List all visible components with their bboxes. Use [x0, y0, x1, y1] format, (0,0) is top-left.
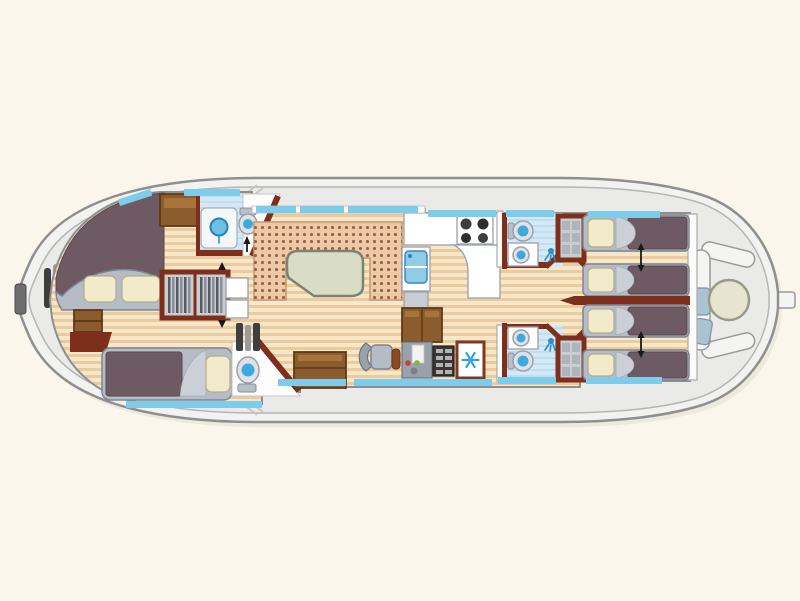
aft-cabin-divider-wall — [560, 296, 690, 305]
console-knob — [411, 368, 418, 375]
shelf-unit — [433, 346, 454, 376]
toilet-water — [243, 219, 253, 229]
companionway-steps — [236, 323, 260, 351]
galley-sink — [402, 247, 430, 291]
indicator-light-red — [405, 360, 411, 366]
window-saloon-top-a — [256, 206, 296, 213]
wardrobe-body — [558, 216, 584, 260]
aft-single-bed-1 — [583, 215, 689, 251]
toilet-water — [518, 226, 529, 237]
single-bed-pillow — [206, 356, 230, 392]
window-saloon-top-c — [348, 206, 418, 213]
refrigerator — [457, 342, 484, 378]
boat-floor-plan-canvas — [0, 0, 800, 601]
stern-round-table — [709, 280, 749, 320]
helm-seat — [359, 343, 392, 371]
window-bow-top — [184, 189, 240, 196]
shower-wall-left — [196, 194, 200, 256]
aft-bathroom-port — [502, 213, 563, 269]
toilet-water — [242, 364, 255, 377]
washbasin-water — [517, 334, 526, 343]
hanging-wardrobe — [162, 262, 228, 328]
bow-cabinet — [160, 194, 200, 226]
window-bow-bottom — [126, 401, 262, 408]
window-bathroom-top — [506, 210, 554, 217]
window-galley-top — [428, 210, 496, 217]
shower-fixture-icon — [211, 219, 228, 236]
single-bed-port — [102, 348, 232, 400]
saloon-side-cabinet-1 — [226, 278, 248, 298]
aft-single-bed-3 — [583, 305, 689, 337]
toilet-water — [518, 356, 529, 367]
double-bed-pillow-1 — [84, 276, 116, 302]
boat-floor-plan — [0, 0, 800, 601]
window-saloon-top-b — [300, 206, 344, 213]
aft-single-bed-4 — [583, 350, 689, 380]
bathroom-wall-left — [502, 213, 507, 269]
bow-tip-cleat — [15, 284, 26, 314]
aft-single-bed-2 — [583, 264, 689, 296]
window-aft-top — [588, 211, 660, 218]
saloon-side-cabinet-2 — [226, 300, 248, 318]
shower-wall-bottom — [196, 250, 246, 256]
indicator-light-green — [414, 360, 420, 366]
window-helm-bottom — [354, 379, 492, 386]
aft-bathroom-starboard — [502, 323, 563, 379]
window-bathroom-bottom — [498, 377, 556, 384]
bathroom-wall-left — [502, 323, 507, 379]
window-aft-bottom — [586, 377, 662, 384]
bow-step-chest — [74, 310, 102, 332]
instrument-console — [402, 342, 432, 378]
washbasin-water — [517, 251, 526, 260]
double-bed-pillow-2 — [122, 276, 160, 302]
galley-oven — [404, 292, 428, 308]
single-bed-blanket — [106, 352, 182, 396]
toilet-tank — [238, 384, 256, 392]
window-saloon-door — [278, 379, 346, 386]
steering-wheel — [392, 349, 400, 369]
wardrobe-body — [558, 338, 584, 380]
galley-lower-cabinets — [402, 308, 442, 342]
stove-4-burner — [457, 215, 493, 244]
stern-deck — [692, 240, 756, 360]
